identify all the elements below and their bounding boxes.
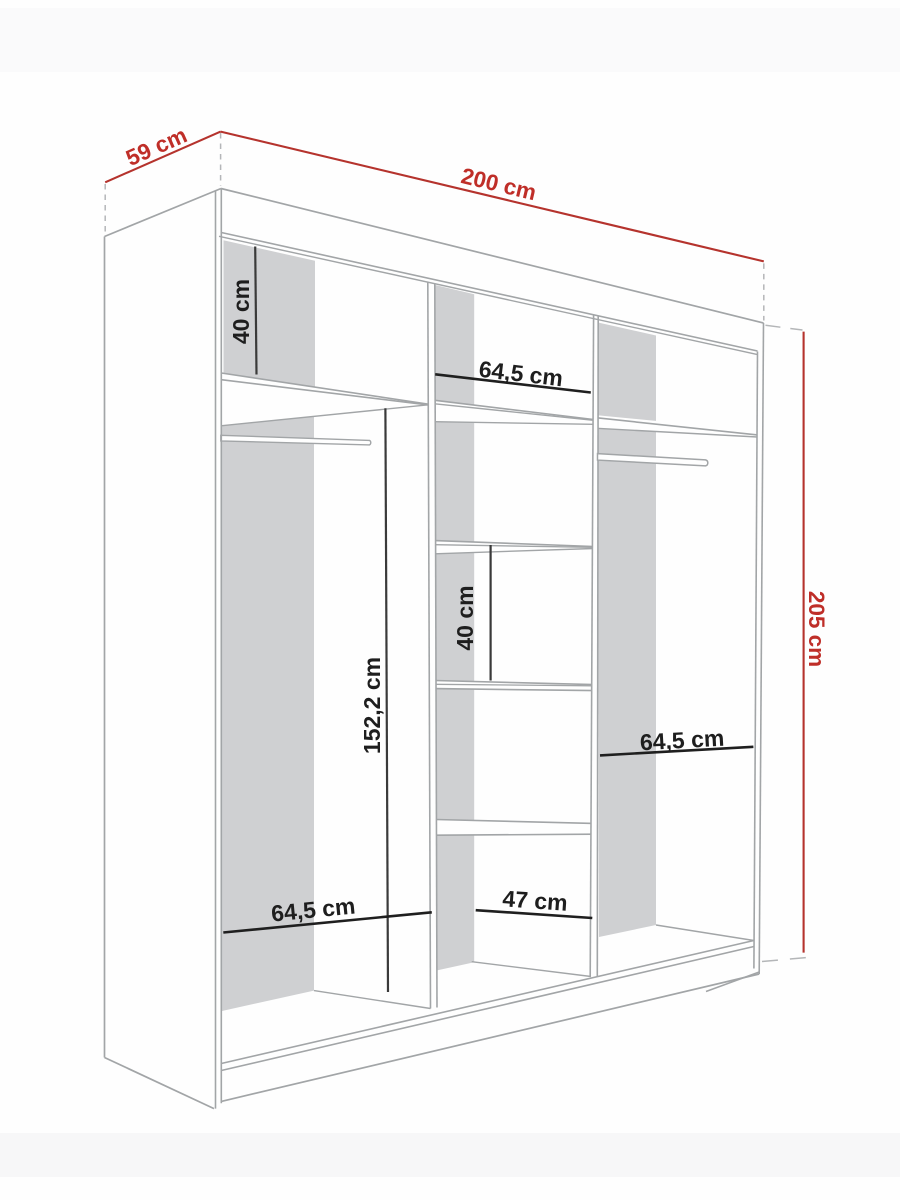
svg-text:152,2 cm: 152,2 cm [359, 657, 385, 754]
svg-text:47 cm: 47 cm [502, 885, 569, 915]
svg-text:64,5 cm: 64,5 cm [639, 725, 725, 756]
svg-text:205 cm: 205 cm [804, 591, 829, 667]
svg-text:40 cm: 40 cm [228, 279, 254, 344]
svg-text:40 cm: 40 cm [452, 585, 478, 650]
